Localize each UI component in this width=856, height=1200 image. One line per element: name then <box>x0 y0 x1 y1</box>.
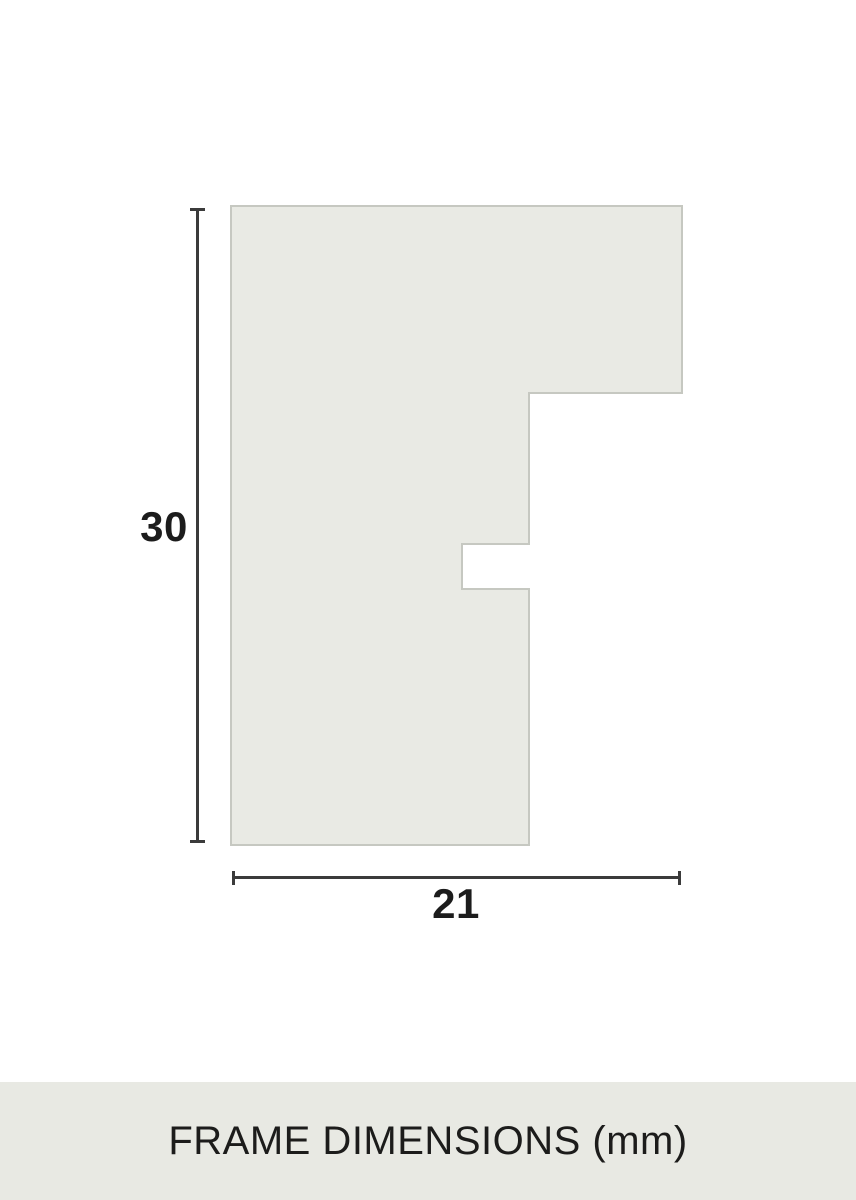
height-dimension-line <box>190 209 205 842</box>
frame-profile-diagram: 30 21 <box>0 0 856 1082</box>
diagram-canvas <box>0 0 856 1082</box>
height-dimension-value: 30 <box>140 506 188 548</box>
caption-text: FRAME DIMENSIONS (mm) <box>168 1119 687 1164</box>
frame-profile-shape <box>231 206 682 845</box>
product-dimension-image: 30 21 FRAME DIMENSIONS (mm) <box>0 0 856 1200</box>
caption-bar: FRAME DIMENSIONS (mm) <box>0 1082 856 1200</box>
width-dimension-value: 21 <box>432 883 480 925</box>
